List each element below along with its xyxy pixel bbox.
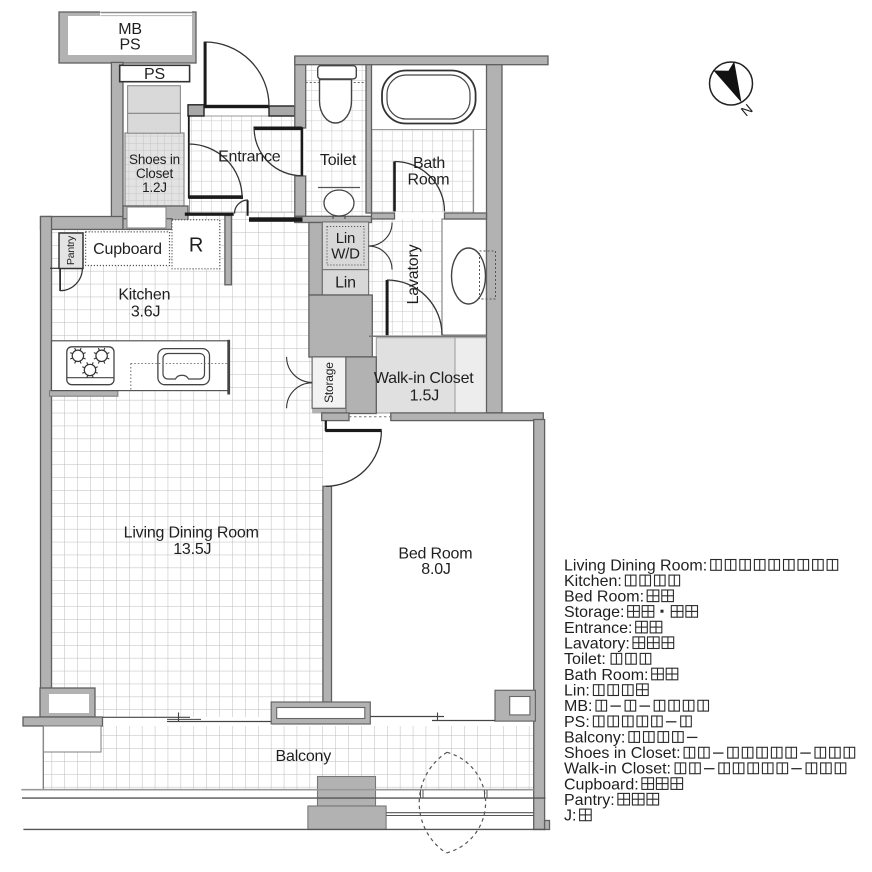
svg-text:Storage:: Storage:	[564, 604, 624, 621]
svg-text:13.5J: 13.5J	[173, 541, 211, 558]
svg-text:W/D: W/D	[331, 246, 360, 263]
svg-text:MB:: MB:	[564, 698, 592, 715]
svg-text:Lin: Lin	[336, 230, 355, 247]
svg-text:Balcony: Balcony	[276, 748, 332, 765]
svg-text:Bed Room:: Bed Room:	[564, 589, 644, 606]
svg-text:Walk-in Closet:: Walk-in Closet:	[564, 761, 671, 778]
svg-text:Balcony:: Balcony:	[564, 729, 625, 746]
svg-text:Bed Room: Bed Room	[398, 546, 472, 563]
svg-text:1.5J: 1.5J	[410, 388, 439, 405]
svg-text:Lavatory:: Lavatory:	[564, 636, 630, 653]
svg-text:Shoes in: Shoes in	[129, 152, 180, 167]
svg-text:MB: MB	[118, 21, 142, 38]
svg-text:Bath: Bath	[413, 155, 445, 172]
svg-text:Lin: Lin	[335, 275, 356, 292]
svg-text:Entrance: Entrance	[218, 149, 281, 166]
svg-text:1.2J: 1.2J	[142, 180, 167, 195]
svg-text:Shoes in Closet:: Shoes in Closet:	[564, 745, 681, 762]
svg-text:Closet: Closet	[136, 166, 174, 181]
svg-text:Bath Room:: Bath Room:	[564, 667, 648, 684]
svg-text:Room: Room	[408, 172, 450, 189]
svg-text:PS: PS	[144, 66, 165, 83]
svg-text:8.0J: 8.0J	[421, 561, 450, 578]
svg-text:PS:: PS:	[564, 714, 590, 731]
svg-text:Pantry: Pantry	[65, 235, 77, 265]
svg-text:Cupboard:: Cupboard:	[564, 776, 639, 793]
svg-text:Pantry:: Pantry:	[564, 792, 615, 809]
svg-text:Kitchen: Kitchen	[118, 287, 170, 304]
svg-text:Lavatory: Lavatory	[405, 244, 422, 304]
svg-text:3.6J: 3.6J	[131, 304, 160, 321]
svg-text:Cupboard: Cupboard	[93, 241, 162, 258]
svg-text:Living Dining Room:: Living Dining Room:	[564, 557, 707, 574]
svg-text:Toilet: Toilet	[320, 152, 357, 169]
svg-text:Toilet:: Toilet:	[564, 651, 606, 668]
svg-text:Walk-in Closet: Walk-in Closet	[374, 370, 474, 387]
svg-text:R: R	[189, 235, 203, 257]
svg-text:Storage: Storage	[322, 362, 336, 403]
svg-text:Lin:: Lin:	[564, 683, 590, 700]
svg-text:J:: J:	[564, 808, 576, 825]
svg-text:Entrance:: Entrance:	[564, 620, 632, 637]
svg-text:PS: PS	[120, 37, 141, 54]
svg-text:Kitchen:: Kitchen:	[564, 573, 622, 590]
svg-text:Living Dining Room: Living Dining Room	[124, 524, 259, 541]
